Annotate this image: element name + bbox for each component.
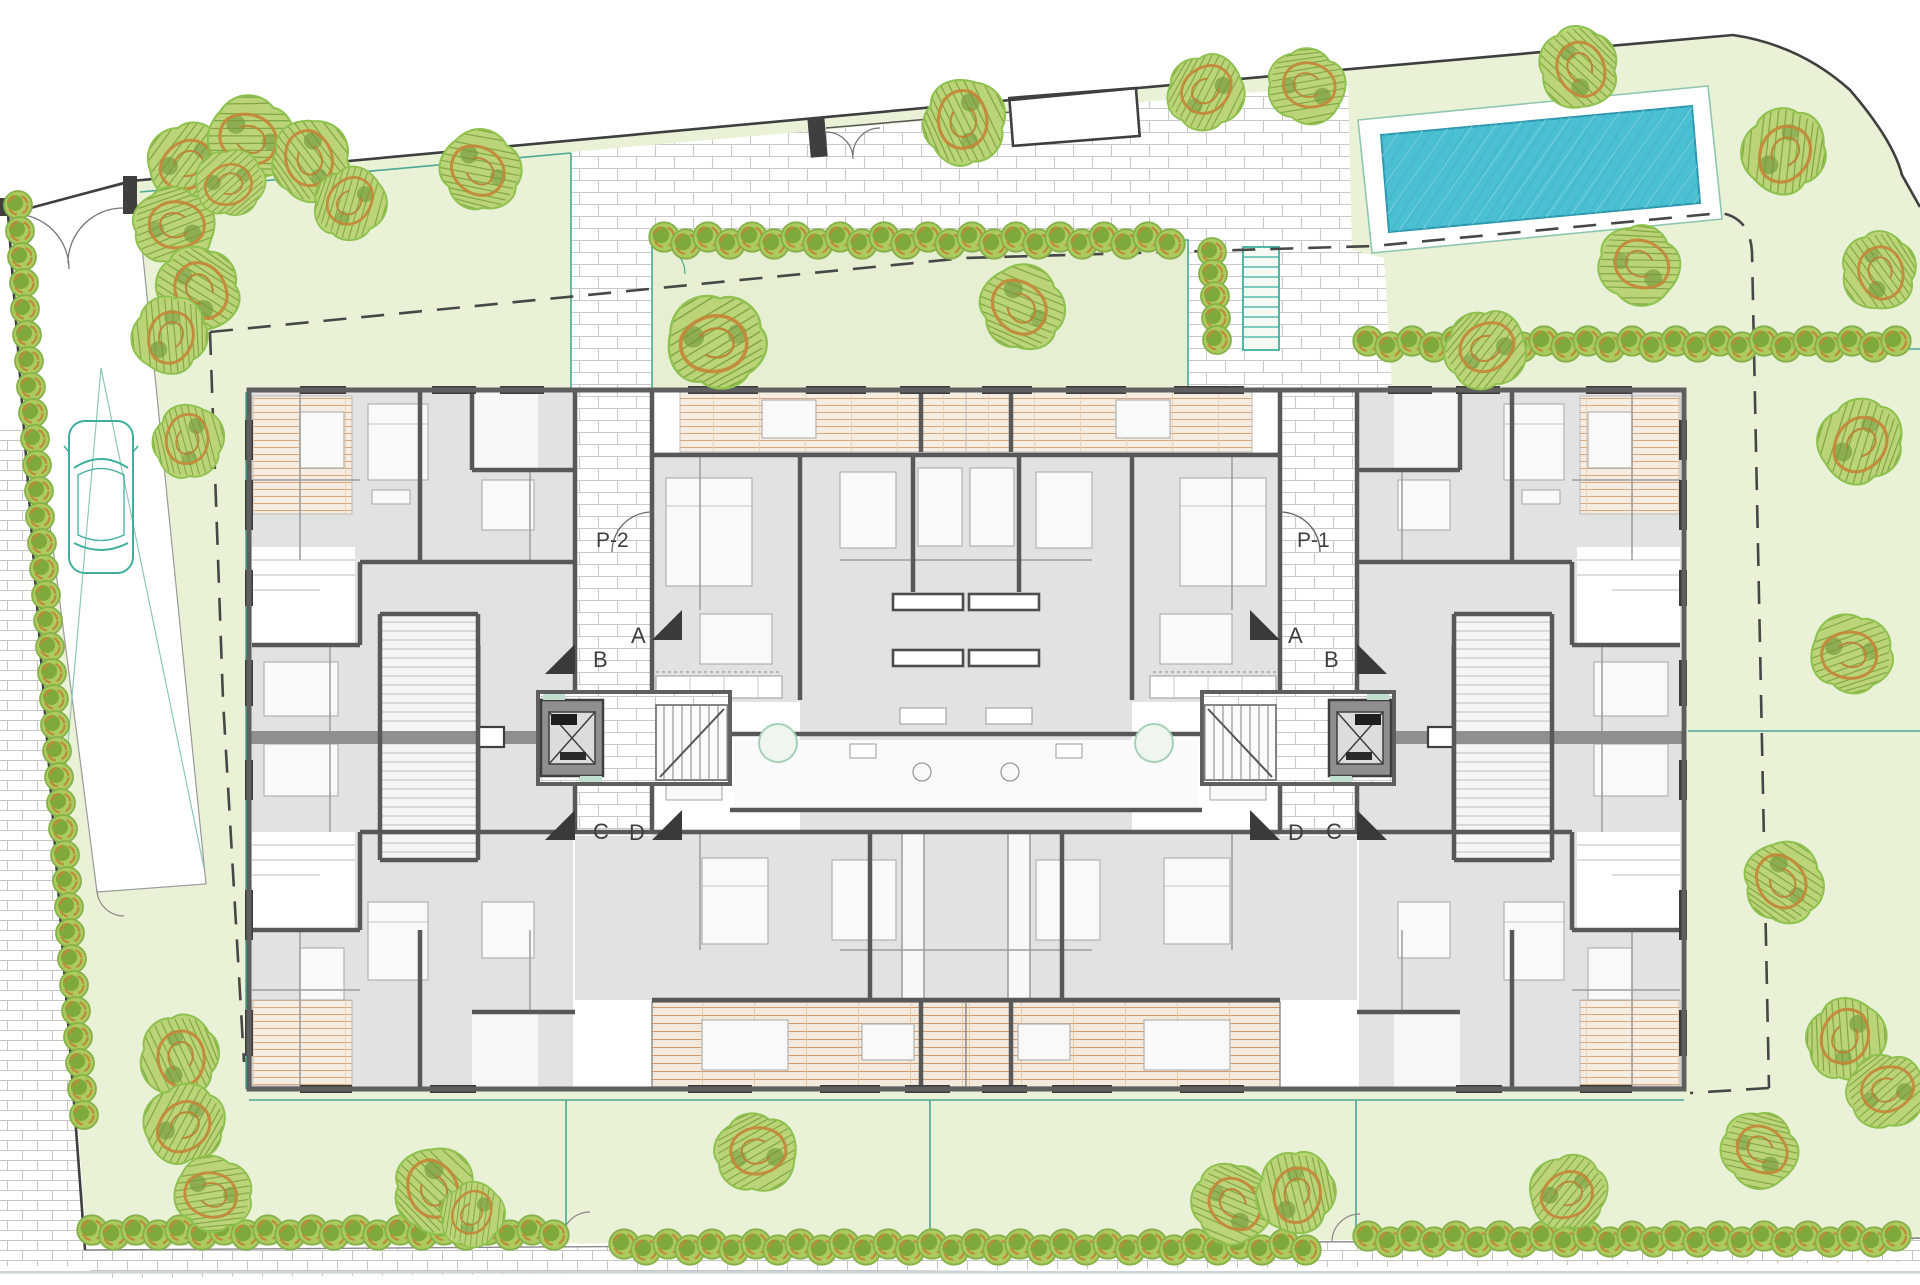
svg-text:D: D [629, 820, 645, 845]
svg-text:B: B [1324, 647, 1339, 672]
svg-text:P-1: P-1 [1297, 529, 1330, 552]
svg-text:C: C [593, 819, 609, 844]
svg-text:A: A [631, 623, 646, 648]
svg-text:P-2: P-2 [596, 529, 629, 552]
svg-text:A: A [1288, 623, 1303, 648]
svg-text:B: B [593, 647, 608, 672]
svg-text:C: C [1326, 819, 1342, 844]
svg-text:D: D [1288, 820, 1304, 845]
